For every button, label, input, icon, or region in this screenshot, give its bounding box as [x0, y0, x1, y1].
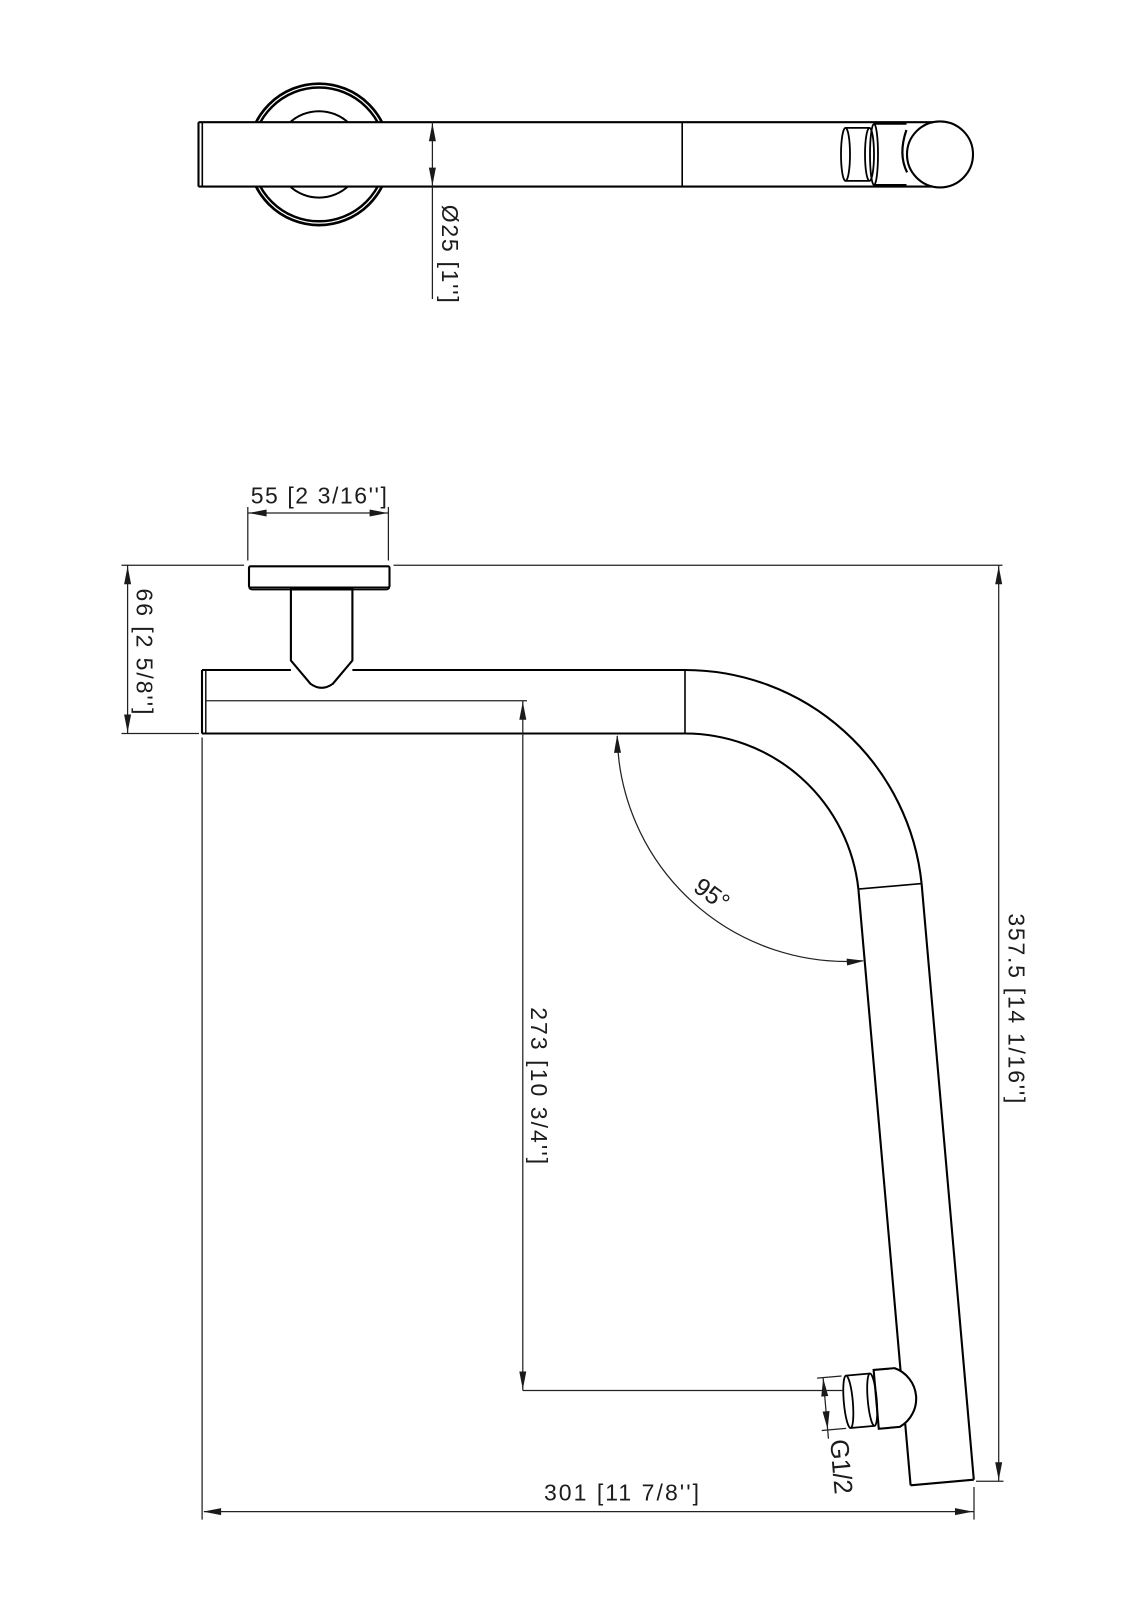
- svg-text:G1/2: G1/2: [824, 1438, 859, 1495]
- svg-text:66 [2 5/8'']: 66 [2 5/8'']: [132, 589, 158, 715]
- svg-text:357.5 [14 1/16'']: 357.5 [14 1/16'']: [1004, 913, 1030, 1103]
- svg-text:Ø25 [1'']: Ø25 [1'']: [437, 205, 463, 303]
- svg-text:273 [10 3/4'']: 273 [10 3/4'']: [526, 1007, 552, 1164]
- svg-text:55 [2 3/16'']: 55 [2 3/16'']: [251, 483, 387, 509]
- svg-text:301 [11 7/8'']: 301 [11 7/8'']: [544, 1480, 699, 1506]
